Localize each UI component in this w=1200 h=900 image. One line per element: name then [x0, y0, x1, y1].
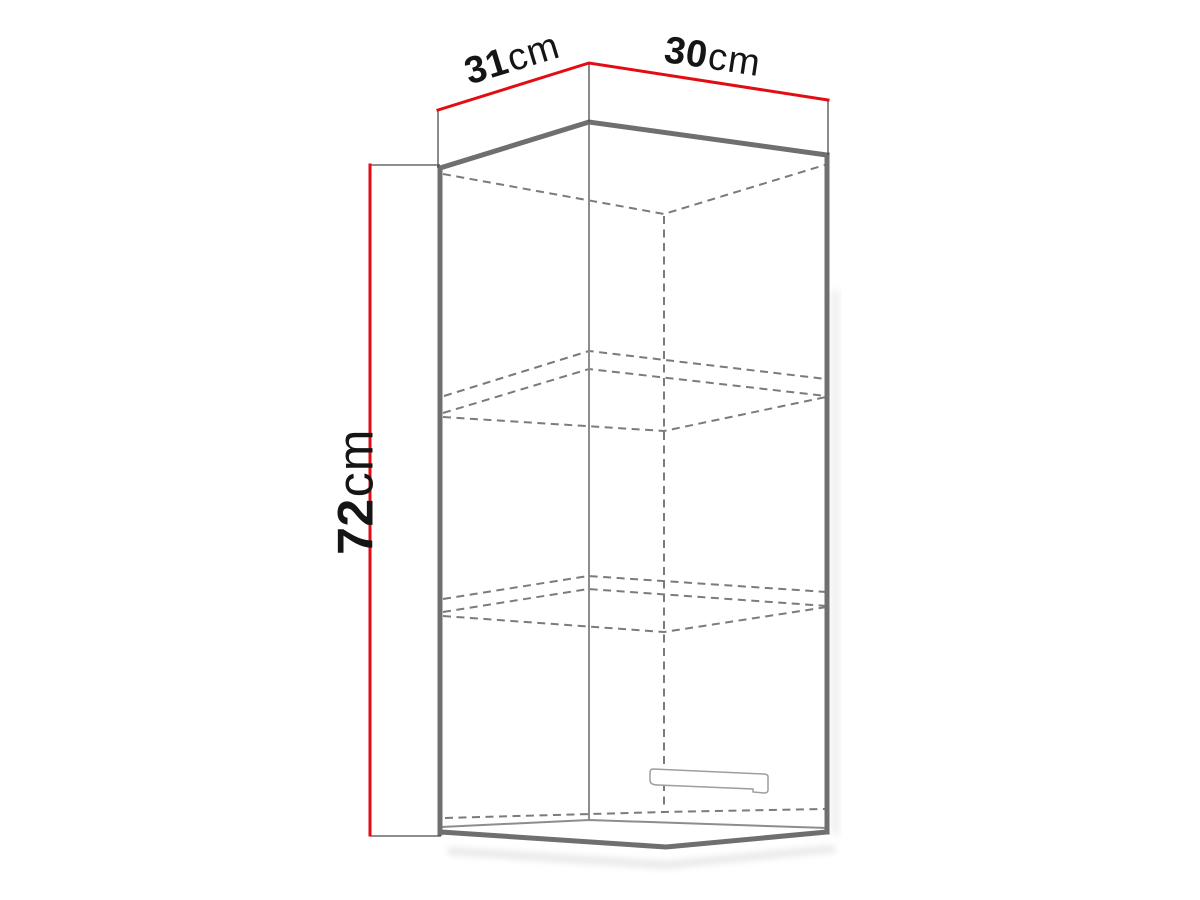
- cabinet-outline: [440, 122, 827, 847]
- shelf-upper-top-edge: [444, 351, 826, 396]
- dimension-label-height: 72cm: [327, 429, 385, 555]
- shelf-lower-bottom-front-edge: [443, 589, 827, 612]
- shelf-lower-top-edge: [443, 576, 827, 599]
- bottom-edge-shadow: [448, 845, 838, 869]
- inner-edges: [441, 122, 827, 828]
- shelf-upper-bottom-back-edge: [443, 397, 826, 431]
- shelf-upper-bottom-front-edge: [443, 369, 826, 413]
- hidden-edges: [443, 164, 828, 818]
- right-edge-shadow: [831, 290, 840, 835]
- dimension-value-72: 72: [327, 498, 383, 555]
- top-front-edges: [440, 122, 827, 168]
- top-back-hidden-edge: [443, 164, 828, 214]
- cabinet-line-drawing: [0, 0, 1200, 900]
- drawing-canvas: 31cm 30cm 72cm: [0, 0, 1200, 900]
- bottom-inner-front-edge: [441, 820, 827, 828]
- dimension-unit-30: cm: [705, 36, 763, 85]
- dimension-value-30: 30: [662, 29, 711, 77]
- bottom-back-hidden-edge: [445, 809, 826, 818]
- door-handle: [650, 769, 768, 793]
- dimension-unit-72: cm: [327, 429, 383, 498]
- shelf-lower-bottom-back-edge: [443, 607, 827, 632]
- bottom-outer-edges: [441, 832, 827, 847]
